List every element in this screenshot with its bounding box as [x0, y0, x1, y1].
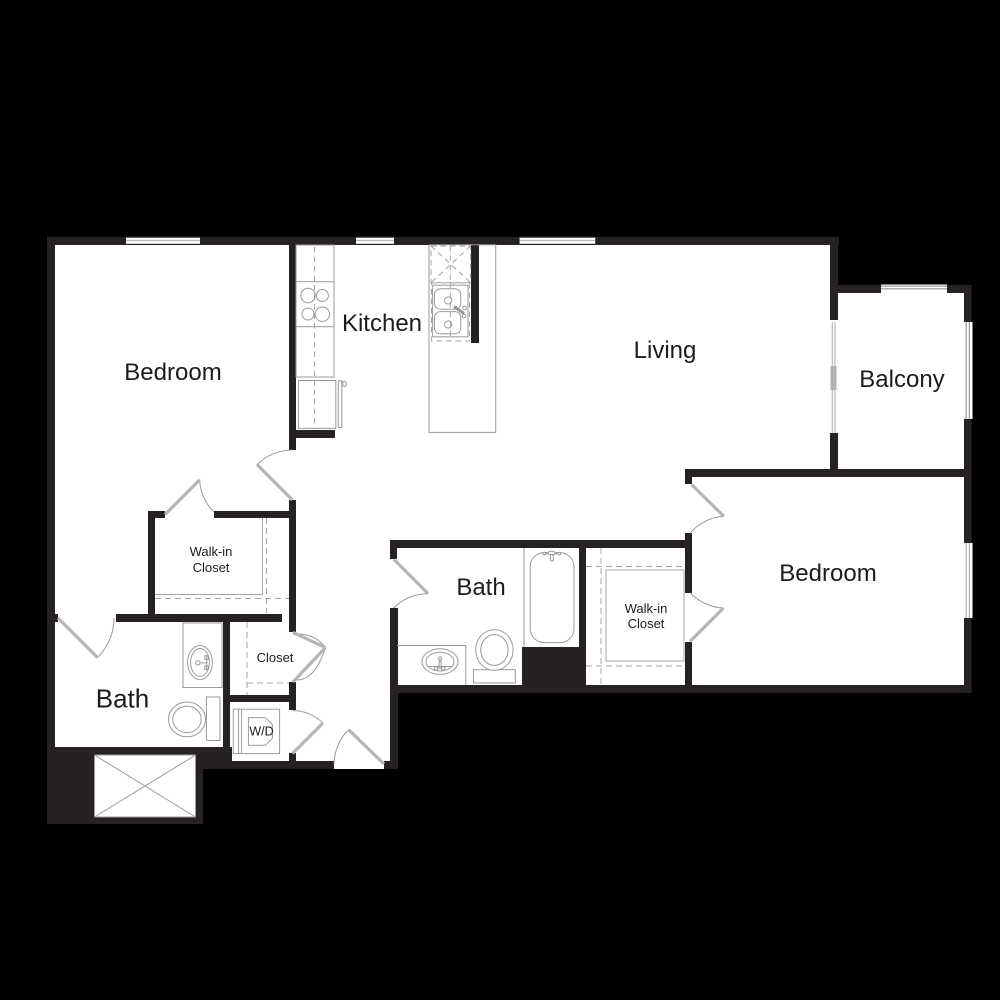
svg-text:Bedroom: Bedroom [779, 560, 876, 587]
svg-text:Walk-in: Walk-in [625, 601, 668, 616]
svg-text:W/D: W/D [249, 725, 273, 739]
svg-text:Walk-in: Walk-in [190, 544, 233, 559]
svg-text:Living: Living [634, 337, 697, 364]
svg-text:Closet: Closet [257, 650, 294, 665]
svg-text:Closet: Closet [193, 560, 230, 575]
svg-text:Closet: Closet [628, 616, 665, 631]
svg-text:Balcony: Balcony [859, 366, 944, 393]
svg-text:Bedroom: Bedroom [124, 359, 221, 386]
svg-text:Bath: Bath [96, 684, 150, 714]
svg-text:Bath: Bath [456, 574, 505, 601]
svg-text:Kitchen: Kitchen [342, 310, 422, 337]
